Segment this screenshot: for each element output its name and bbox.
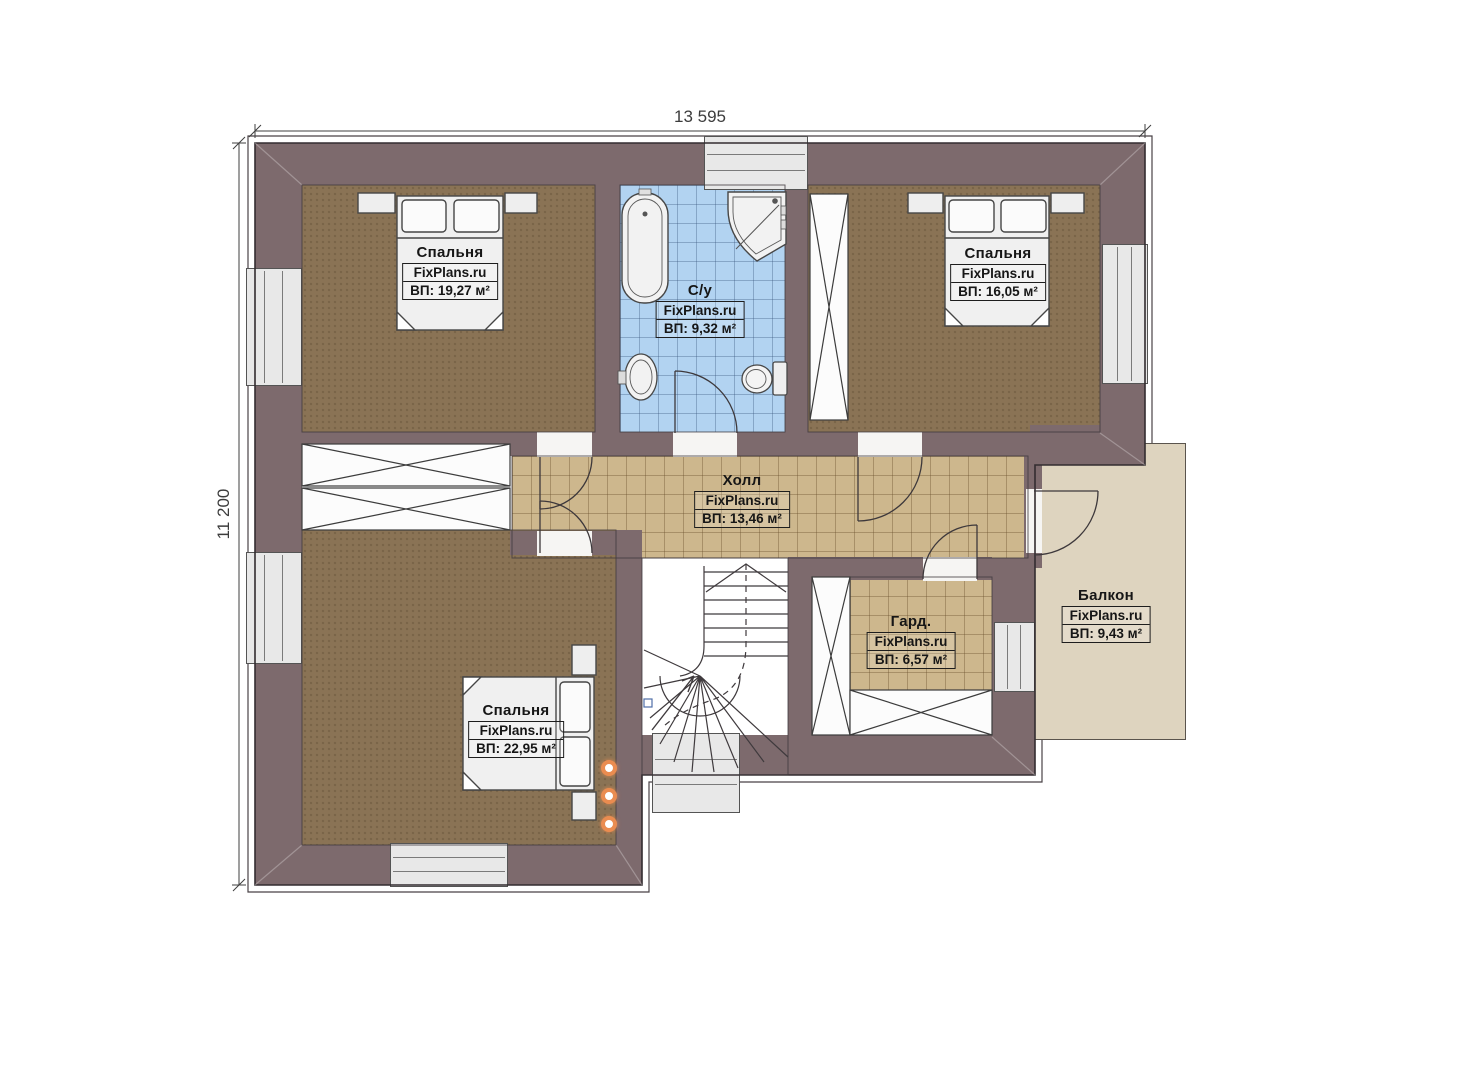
room-area: ВП: 22,95 м²	[469, 739, 563, 757]
dimension-width-label: 13 595	[674, 107, 726, 127]
room-label-bedroom-top-right: Спальня FixPlans.ru ВП: 16,05 м²	[950, 245, 1046, 301]
room-area: ВП: 13,46 м²	[695, 509, 789, 527]
room-brand: FixPlans.ru	[695, 492, 789, 509]
room-name: Холл	[723, 472, 762, 489]
room-label-hall: Холл FixPlans.ru ВП: 13,46 м²	[694, 472, 790, 528]
spotlight-dot	[601, 760, 617, 776]
room-area: ВП: 16,05 м²	[951, 282, 1045, 300]
room-brand: FixPlans.ru	[469, 722, 563, 739]
room-area: ВП: 9,43 м²	[1063, 624, 1150, 642]
room-info-box: FixPlans.ru ВП: 13,46 м²	[694, 491, 790, 528]
room-info-box: FixPlans.ru ВП: 22,95 м²	[468, 721, 564, 758]
room-label-bathroom: С/у FixPlans.ru ВП: 9,32 м²	[656, 282, 745, 338]
spotlight-dot	[601, 816, 617, 832]
room-info-box: FixPlans.ru ВП: 19,27 м²	[402, 263, 498, 300]
room-label-bedroom-top-left: Спальня FixPlans.ru ВП: 19,27 м²	[402, 244, 498, 300]
dimension-height-label: 11 200	[214, 489, 234, 540]
room-brand: FixPlans.ru	[868, 633, 955, 650]
room-brand: FixPlans.ru	[657, 302, 744, 319]
room-info-box: FixPlans.ru ВП: 16,05 м²	[950, 264, 1046, 301]
room-info-box: FixPlans.ru ВП: 9,43 м²	[1062, 606, 1151, 643]
room-name: Гард.	[891, 613, 932, 630]
room-info-box: FixPlans.ru ВП: 6,57 м²	[867, 632, 956, 669]
room-name: Спальня	[965, 245, 1032, 262]
room-label-balcony: Балкон FixPlans.ru ВП: 9,43 м²	[1062, 587, 1151, 643]
room-area: ВП: 19,27 м²	[403, 281, 497, 299]
room-name: Спальня	[417, 244, 484, 261]
room-brand: FixPlans.ru	[951, 265, 1045, 282]
room-label-bedroom-bottom: Спальня FixPlans.ru ВП: 22,95 м²	[468, 702, 564, 758]
room-area: ВП: 9,32 м²	[657, 319, 744, 337]
room-name: Балкон	[1078, 587, 1134, 604]
floor-plan-canvas: 13 595 11 200 Спальня FixPlans.ru ВП: 19…	[0, 0, 1473, 1080]
room-brand: FixPlans.ru	[1063, 607, 1150, 624]
room-label-wardrobe: Гард. FixPlans.ru ВП: 6,57 м²	[867, 613, 956, 669]
room-area: ВП: 6,57 м²	[868, 650, 955, 668]
room-name: Спальня	[483, 702, 550, 719]
room-brand: FixPlans.ru	[403, 264, 497, 281]
room-info-box: FixPlans.ru ВП: 9,32 м²	[656, 301, 745, 338]
room-name: С/у	[688, 282, 712, 299]
spotlights	[0, 0, 1473, 1080]
spotlight-dot	[601, 788, 617, 804]
